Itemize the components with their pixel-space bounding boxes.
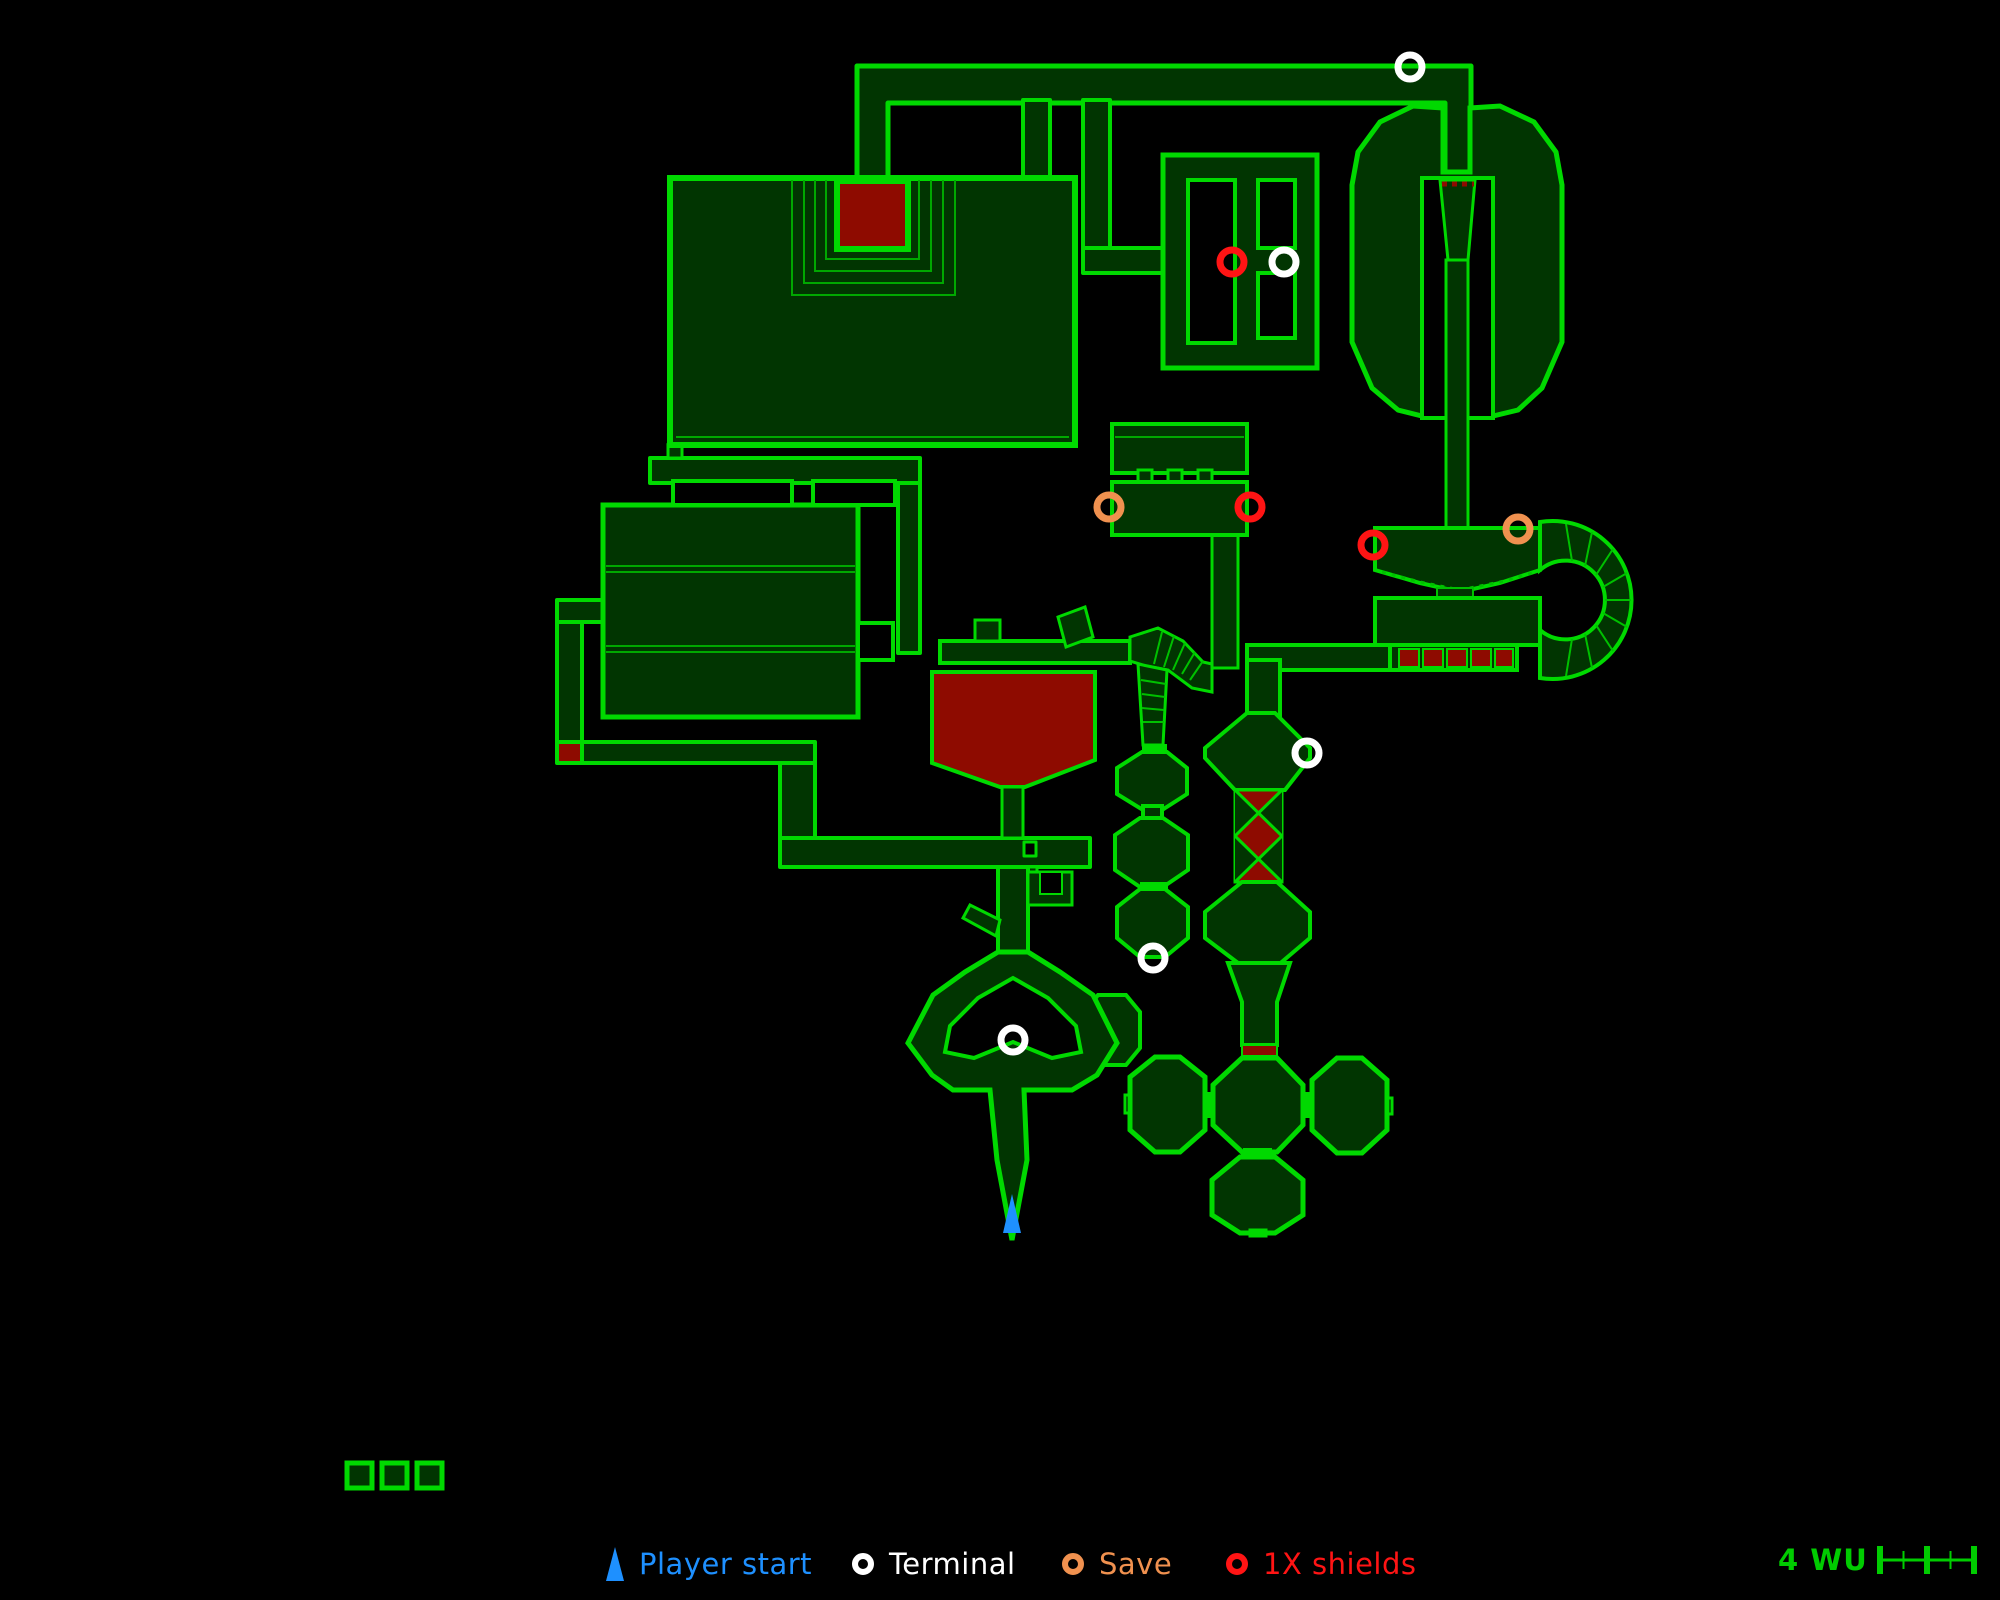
scale-label: 4 WU — [1778, 1543, 1868, 1577]
supply-room — [1112, 424, 1247, 668]
storage-doorway-west — [673, 481, 792, 505]
slot-pit-northeast — [1258, 180, 1295, 248]
player-start-icon — [606, 1547, 624, 1581]
basin-drain — [1002, 787, 1023, 838]
top-stem — [998, 867, 1028, 955]
legend-save: Save — [1062, 1540, 1172, 1588]
lava-basin — [932, 672, 1095, 787]
storage-alcove — [858, 623, 893, 660]
east-column — [1205, 713, 1310, 1056]
column-funnel — [1228, 963, 1290, 1045]
storage-building — [603, 481, 895, 717]
slot-room-connector — [1083, 248, 1163, 273]
terminal-icon — [852, 1553, 874, 1575]
slot-pit-southeast — [1258, 273, 1295, 338]
legend-label: Save — [1099, 1547, 1172, 1581]
bazaar-lower-room — [1375, 598, 1540, 645]
bazaar-elbow — [1247, 660, 1280, 715]
south-corridor-elbow — [780, 763, 815, 843]
east-bazaar — [1247, 521, 1632, 715]
corridor-drop-b — [1083, 100, 1110, 265]
connector-vertical — [898, 483, 920, 653]
legend-label: Player start — [639, 1547, 812, 1581]
funnel-shaft — [1138, 664, 1167, 745]
legend-shields: 1X shields — [1226, 1540, 1417, 1588]
basin-chimney — [975, 620, 1000, 641]
south-corridor-upper — [582, 742, 815, 763]
storage-floor — [603, 505, 858, 717]
detached-room — [417, 1463, 442, 1488]
slot-pit-west — [1188, 180, 1235, 343]
bulb-chamber — [1352, 106, 1562, 530]
legend-bar: Player start Terminal Save 1X shields 4 … — [0, 1540, 2000, 1600]
supply-upper — [1112, 424, 1247, 473]
detached-rooms — [347, 1463, 442, 1488]
supply-pipe — [1212, 533, 1238, 668]
storage-doorway-east — [813, 481, 895, 505]
cluster-center-octagon — [1213, 1058, 1303, 1152]
bulb-shaft — [1446, 260, 1468, 530]
basin-lip-corridor — [940, 641, 1130, 663]
shields-icon — [1226, 1553, 1248, 1575]
arena-room — [670, 178, 1075, 445]
detached-room — [347, 1463, 372, 1488]
cluster-south-hex — [1212, 1157, 1303, 1233]
hex-cell-2 — [1115, 818, 1188, 887]
legend-label: Terminal — [889, 1547, 1016, 1581]
hex-cell-1 — [1117, 752, 1187, 810]
legend-terminal: Terminal — [852, 1540, 1016, 1588]
west-corridor-door — [557, 742, 582, 763]
top-hook-notch — [1040, 872, 1062, 894]
corridor-drop-a — [1023, 100, 1050, 182]
save-icon — [1062, 1553, 1084, 1575]
arena-lava-pit — [838, 182, 907, 248]
supply-lower — [1112, 482, 1247, 535]
legend-label: 1X shields — [1263, 1547, 1417, 1581]
automap-screen: Player start Terminal Save 1X shields 4 … — [0, 0, 2000, 1600]
west-corridor-shaft — [557, 622, 582, 742]
scale-ruler-icon — [1876, 1540, 1978, 1580]
bazaar-red-pads — [1399, 649, 1513, 667]
south-corridor-notch — [1024, 842, 1036, 856]
south-corridor-lower — [780, 838, 1090, 867]
cluster-west-hex — [1130, 1057, 1205, 1152]
column-mid-room — [1205, 882, 1310, 966]
west-corridor-stub — [557, 600, 603, 622]
map-canvas[interactable] — [0, 0, 2000, 1600]
hex-cluster — [1125, 1057, 1392, 1236]
map-scale: 4 WU — [1778, 1540, 1978, 1580]
legend-player-start: Player start — [606, 1540, 812, 1588]
detached-room — [382, 1463, 407, 1488]
top-flag-stub — [963, 905, 1000, 936]
column-red-door — [1242, 1045, 1277, 1056]
cluster-east-hex — [1312, 1058, 1387, 1153]
